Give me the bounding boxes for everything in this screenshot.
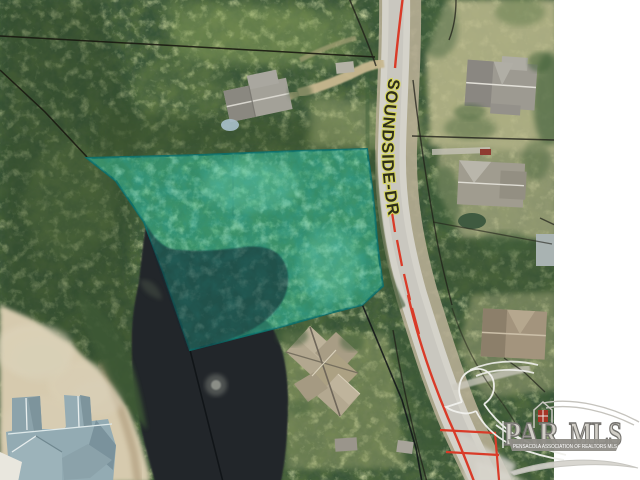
svg-text:PENSACOLA ASSOCIATION OF REALT: PENSACOLA ASSOCIATION OF REALTORS MLS <box>513 444 617 450</box>
